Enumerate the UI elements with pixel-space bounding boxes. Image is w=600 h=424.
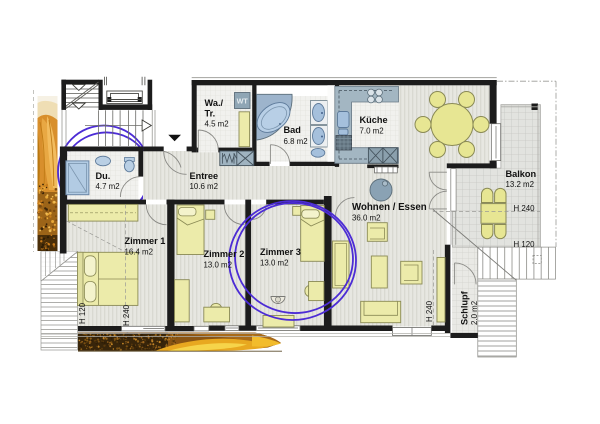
svg-text:4.7 m2: 4.7 m2 [96, 182, 120, 191]
svg-text:H 240: H 240 [425, 300, 434, 322]
svg-text:7.0 m2: 7.0 m2 [360, 127, 384, 136]
svg-text:13.2 m2: 13.2 m2 [506, 180, 535, 189]
svg-text:Bad: Bad [284, 125, 301, 135]
svg-text:10.6 m2: 10.6 m2 [190, 182, 219, 191]
svg-text:4.5 m2: 4.5 m2 [205, 120, 229, 129]
svg-text:36.0 m2: 36.0 m2 [352, 214, 381, 223]
svg-text:16.4 m2: 16.4 m2 [125, 248, 154, 257]
svg-text:Du.: Du. [96, 171, 111, 181]
svg-text:Entree: Entree [190, 171, 219, 181]
svg-text:6.8 m2: 6.8 m2 [284, 137, 308, 146]
svg-text:Zimmer 3: Zimmer 3 [260, 247, 301, 257]
svg-text:Zimmer 2: Zimmer 2 [204, 249, 245, 259]
svg-text:H 120: H 120 [514, 240, 536, 249]
svg-text:H 240: H 240 [122, 304, 131, 326]
svg-text:Schlupf: Schlupf [460, 290, 470, 325]
svg-text:2.0 m2: 2.0 m2 [470, 301, 479, 325]
svg-text:H 120: H 120 [78, 302, 87, 324]
svg-text:H 240: H 240 [514, 204, 536, 213]
svg-text:Küche: Küche [360, 115, 388, 125]
svg-text:WT: WT [237, 97, 249, 106]
svg-text:Tr.: Tr. [205, 109, 216, 119]
svg-text:13.0 m2: 13.0 m2 [260, 259, 289, 268]
svg-text:Balkon: Balkon [506, 169, 537, 179]
svg-text:Wohnen / Essen: Wohnen / Essen [352, 202, 427, 213]
svg-text:Zimmer 1: Zimmer 1 [125, 236, 166, 246]
svg-text:Wa./: Wa./ [205, 98, 224, 108]
svg-text:13.0 m2: 13.0 m2 [204, 261, 233, 270]
